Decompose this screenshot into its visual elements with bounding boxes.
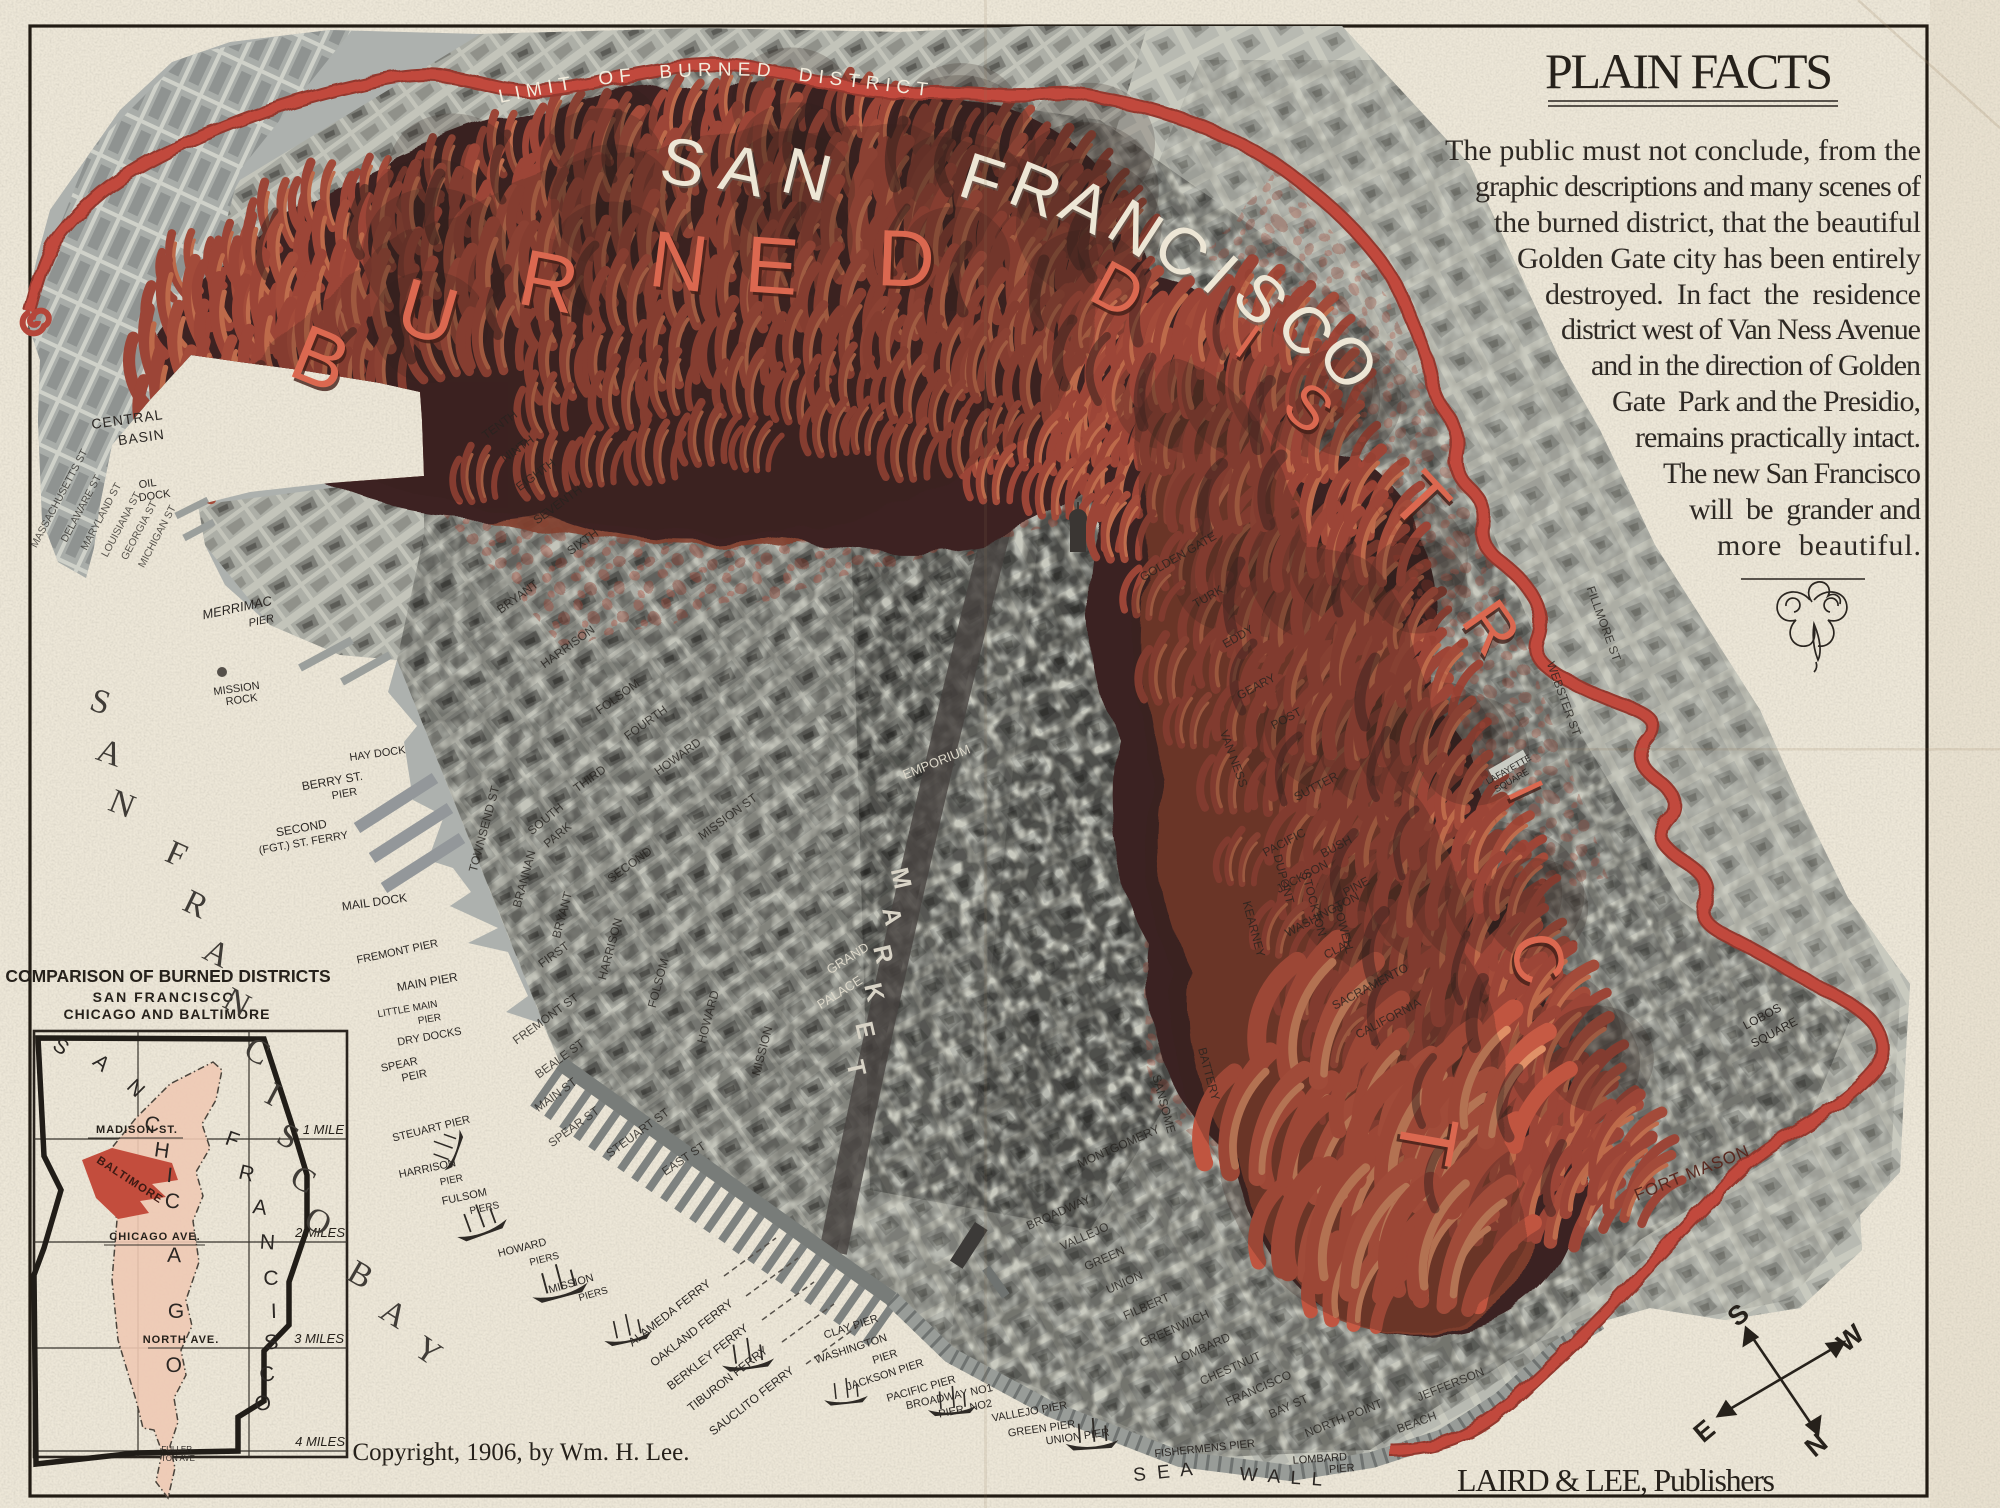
svg-text:CHICAGO AVE.: CHICAGO AVE. [109,1231,200,1243]
svg-text:C: C [263,1267,278,1290]
svg-text:graphic descriptions and many: graphic descriptions and many scenes of [1475,170,1921,203]
svg-text:O: O [165,1354,182,1378]
svg-text:E: E [742,219,801,312]
svg-text:1 MILE: 1 MILE [303,1122,345,1137]
svg-text:PLAIN FACTS: PLAIN FACTS [1545,43,1835,99]
svg-text:The new San Francisco: The new San Francisco [1663,457,1921,490]
svg-text:TON AVE: TON AVE [161,1454,195,1463]
svg-text:PIER: PIER [1329,1462,1356,1476]
svg-text:COMPARISON OF BURNED DISTRICTS: COMPARISON OF BURNED DISTRICTS [5,966,330,986]
svg-text:NORTH AVE.: NORTH AVE. [143,1334,220,1346]
svg-text:remains practically intact.: remains practically intact. [1635,421,1921,454]
svg-text:the burned district, that the: the burned district, that the beautiful [1494,206,1921,239]
svg-text:N: N [259,1231,276,1255]
svg-text:G: G [168,1300,184,1323]
svg-text:N: N [645,214,713,309]
svg-text:A: A [167,1244,182,1267]
svg-text:FULLER-: FULLER- [161,1445,195,1454]
svg-text:I: I [270,1300,277,1323]
svg-text:LAIRD & LEE, Publishers: LAIRD & LEE, Publishers [1457,1462,1775,1498]
svg-text:Gate Park and the Presidio,: Gate Park and the Presidio, [1612,385,1921,418]
svg-text:3 MILES: 3 MILES [294,1331,344,1346]
svg-text:SAN FRANCISCO: SAN FRANCISCO [93,989,236,1005]
svg-text:4 MILES: 4 MILES [295,1434,345,1449]
svg-text:D: D [876,213,937,304]
svg-text:district west of Van Ness Aven: district west of Van Ness Avenue [1561,313,1921,346]
svg-text:destroyed. In fact the resi: destroyed. In fact the residence [1545,278,1921,311]
svg-text:and in the direction of Golden: and in the direction of Golden [1591,349,1921,382]
svg-text:will be grander and: will be grander and [1689,493,1921,526]
svg-text:MADISON ST.: MADISON ST. [96,1124,178,1136]
svg-text:H: H [153,1138,171,1163]
svg-text:S: S [263,1330,279,1354]
svg-text:Copyright, 1906, by Wm. H. Lee: Copyright, 1906, by Wm. H. Lee. [353,1439,690,1466]
svg-text:C: C [164,1190,181,1214]
svg-text:C: C [258,1362,276,1387]
svg-text:more beautiful.: more beautiful. [1717,529,1921,562]
svg-text:The public must not conclude,: The public must not conclude, from the [1445,134,1921,167]
svg-text:Golden Gate city has been enti: Golden Gate city has been entirely [1517,242,1921,275]
